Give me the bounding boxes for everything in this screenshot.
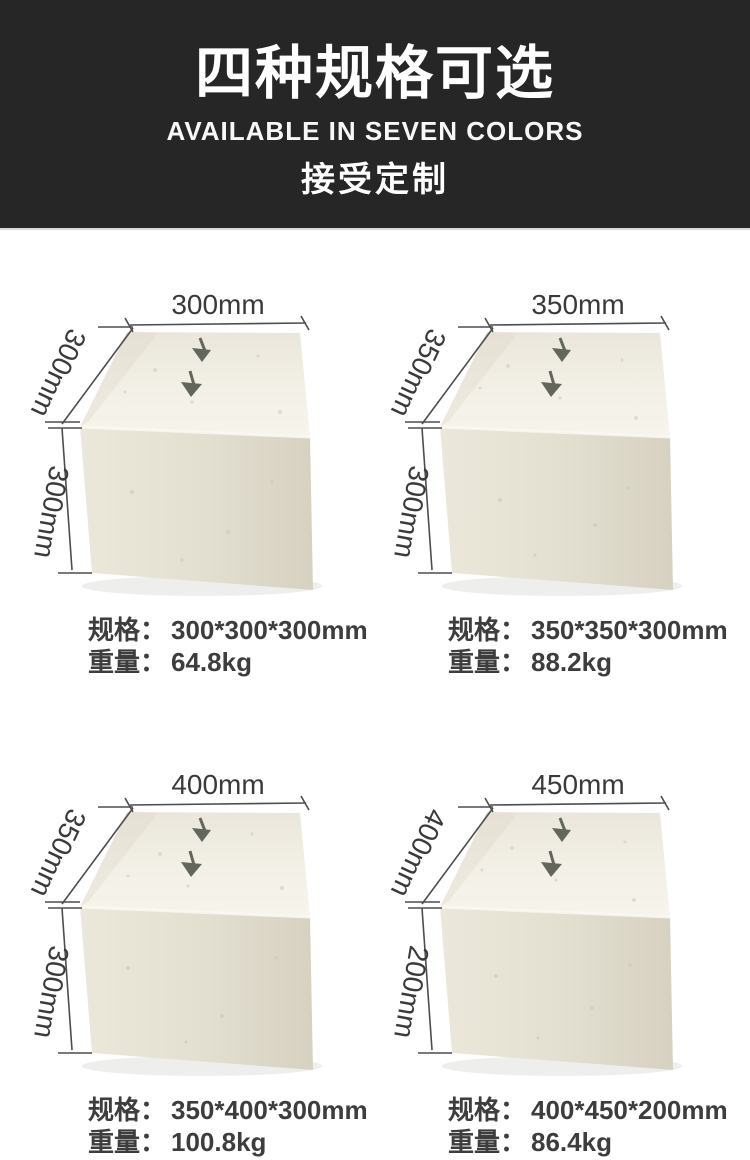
header-banner: 四种规格可选 AVAILABLE IN SEVEN COLORS 接受定制 [0,0,750,230]
spec-value-size: 350*350*300mm [531,615,728,645]
page-title: 四种规格可选 [0,42,750,106]
spec-value-size: 350*400*300mm [171,1095,368,1125]
spec-row-size: 规格：300*300*300mm [88,614,368,646]
dimension-label-width: 350mm [498,288,658,322]
product-card: 300mm 300mm 300mm 规格：300*300*300mm 重量：64… [30,270,370,750]
spec-key: 重量： [88,647,166,677]
spec-row-size: 规格：400*450*200mm [448,1094,728,1126]
spec-value-size: 400*450*200mm [531,1095,728,1125]
spec-key: 重量： [448,647,526,677]
spec-key: 规格： [448,1095,526,1125]
block-body [80,812,313,1070]
block-body [440,332,673,590]
spec-value-weight: 100.8kg [171,1127,266,1157]
block-front-face [80,427,313,590]
block-front-face [80,907,313,1070]
spec-value-weight: 88.2kg [531,647,612,677]
block-body [440,812,673,1070]
header-subtitle: AVAILABLE IN SEVEN COLORS [0,116,750,147]
spec-row-weight: 重量：88.2kg [448,646,728,678]
dimension-label-width: 450mm [498,768,658,802]
spec-row-size: 规格：350*350*300mm [448,614,728,646]
dimension-label-width: 400mm [138,768,298,802]
spec-row-weight: 重量：100.8kg [88,1126,368,1158]
spec-list: 规格：400*450*200mm 重量：86.4kg [448,1094,728,1158]
product-card: 400mm 350mm 300mm 规格：350*400*300mm 重量：10… [30,750,370,1160]
spec-list: 规格：350*350*300mm 重量：88.2kg [448,614,728,678]
dimension-label-width: 300mm [138,288,298,322]
product-spec-page: 四种规格可选 AVAILABLE IN SEVEN COLORS 接受定制 [0,0,750,1160]
spec-key: 规格： [88,615,166,645]
spec-key: 重量： [448,1127,526,1157]
spec-value-size: 300*300*300mm [171,615,368,645]
product-card: 450mm 400mm 200mm 规格：400*450*200mm 重量：86… [390,750,730,1160]
product-card: 350mm 350mm 300mm 规格：350*350*300mm 重量：88… [390,270,730,750]
spec-key: 规格： [448,615,526,645]
spec-row-weight: 重量：86.4kg [448,1126,728,1158]
spec-value-weight: 64.8kg [171,647,252,677]
spec-list: 规格：300*300*300mm 重量：64.8kg [88,614,368,678]
spec-row-size: 规格：350*400*300mm [88,1094,368,1126]
header-tagline: 接受定制 [0,152,750,201]
spec-list: 规格：350*400*300mm 重量：100.8kg [88,1094,368,1158]
block-front-face [440,427,673,590]
spec-key: 重量： [88,1127,166,1157]
block-front-face [440,907,673,1070]
spec-key: 规格： [88,1095,166,1125]
block-body [80,332,313,590]
spec-row-weight: 重量：64.8kg [88,646,368,678]
spec-value-weight: 86.4kg [531,1127,612,1157]
